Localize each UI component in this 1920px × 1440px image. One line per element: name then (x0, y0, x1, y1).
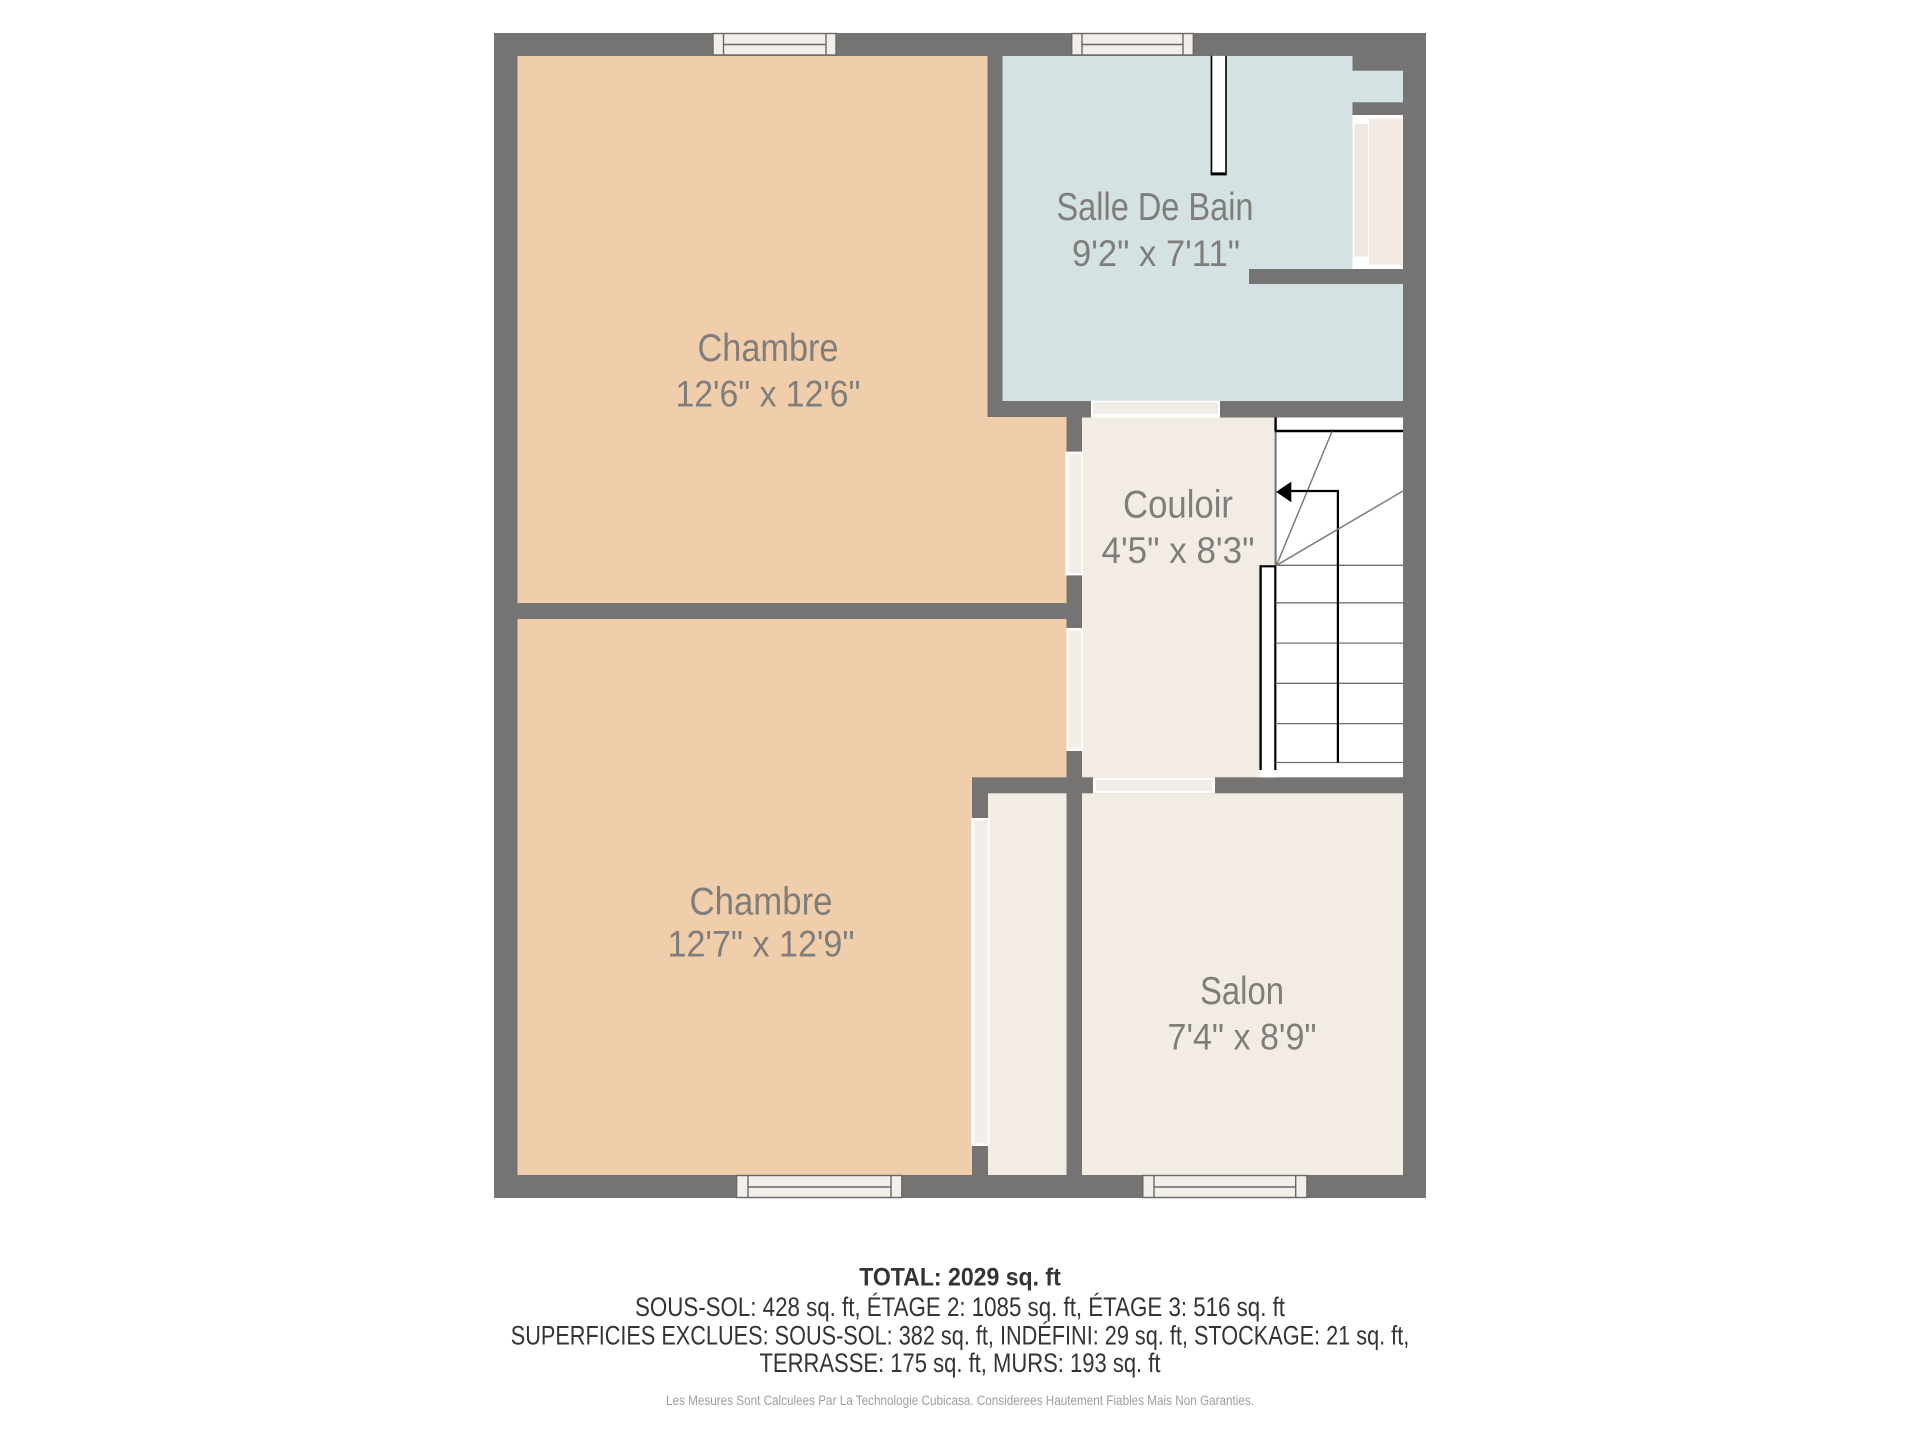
svg-text:Salle De Bain: Salle De Bain (1057, 186, 1254, 229)
svg-text:12'7" x 12'9": 12'7" x 12'9" (668, 924, 855, 965)
svg-text:7'4" x 8'9": 7'4" x 8'9" (1168, 1017, 1317, 1058)
svg-text:Chambre: Chambre (690, 881, 833, 924)
svg-text:9'2" x 7'11": 9'2" x 7'11" (1072, 233, 1240, 274)
svg-text:4'5" x 8'3": 4'5" x 8'3" (1102, 530, 1255, 571)
svg-text:SOUS-SOL: 428 sq. ft, ÉTAGE 2:: SOUS-SOL: 428 sq. ft, ÉTAGE 2: 1085 sq. … (635, 1292, 1285, 1322)
svg-text:TERRASSE: 175 sq. ft, MURS: 19: TERRASSE: 175 sq. ft, MURS: 193 sq. ft (760, 1348, 1161, 1378)
svg-text:Salon: Salon (1200, 970, 1284, 1013)
svg-text:Couloir: Couloir (1123, 484, 1233, 527)
svg-text:12'6" x 12'6": 12'6" x 12'6" (676, 374, 861, 415)
svg-text:Chambre: Chambre (698, 327, 839, 370)
svg-text:SUPERFICIES EXCLUES: SOUS-SOL:: SUPERFICIES EXCLUES: SOUS-SOL: 382 sq. f… (511, 1321, 1410, 1351)
svg-text:TOTAL: 2029 sq. ft: TOTAL: 2029 sq. ft (859, 1264, 1061, 1292)
svg-text:Les Mesures Sont Calculees Par: Les Mesures Sont Calculees Par La Techno… (666, 1393, 1254, 1408)
